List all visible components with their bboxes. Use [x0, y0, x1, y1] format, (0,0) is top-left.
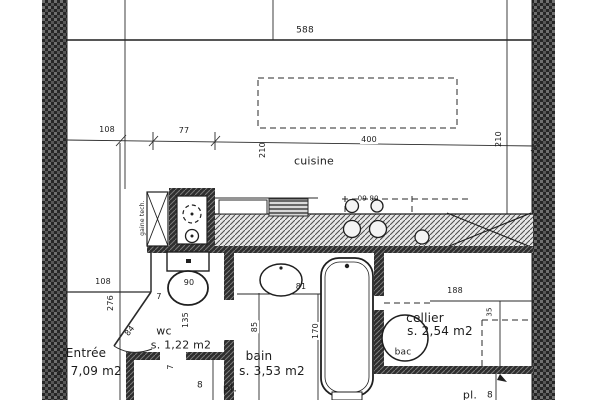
- dim-85: 85: [251, 321, 259, 334]
- roof-opening-dashed-outline: [258, 78, 457, 128]
- dim-210-left: 210: [259, 142, 267, 158]
- room-area-cellier: s. 2,54 m2: [407, 325, 473, 337]
- dim-400: 400: [360, 136, 378, 144]
- dim-108-left: 108: [95, 278, 111, 286]
- room-area-wc: s. 1,22 m2: [151, 340, 211, 351]
- appliance-block: [169, 188, 215, 252]
- dim-588: 588: [296, 27, 314, 36]
- dim-8-pl: 8: [197, 382, 203, 391]
- floor-plan: 588 108 77 400 210 210 cuisine gaine tec…: [0, 0, 600, 400]
- hob-size-label: 08 60: [357, 194, 378, 201]
- dim-81: 81: [296, 283, 307, 291]
- room-label-bain: bain: [246, 350, 273, 362]
- dim-135: 135: [182, 311, 190, 329]
- room-label-placard: pl.: [223, 383, 237, 394]
- bathtub: [321, 258, 373, 400]
- room-label-entree: Entrée: [66, 347, 107, 359]
- outer-wall-right: [532, 0, 555, 400]
- room-area-bain: s. 3,53 m2: [239, 365, 305, 377]
- dim-77: 77: [179, 127, 190, 135]
- room-label-placard-bottom: pl.: [463, 390, 477, 400]
- duct-label: gaine tech.: [140, 200, 146, 236]
- dim-188: 188: [446, 287, 464, 295]
- dim-170: 170: [312, 322, 320, 340]
- room-area-entree: s. 7,09 m2: [56, 365, 122, 377]
- wall-cabinet: [219, 200, 267, 214]
- dim-108-top: 108: [99, 126, 115, 134]
- technical-duct: [147, 192, 168, 246]
- washbasin: [260, 264, 302, 296]
- bac-label: bac: [395, 349, 412, 358]
- dim-8-bottom: 8: [487, 392, 493, 400]
- dim-7-pl: 7: [167, 364, 175, 369]
- outer-wall-left: [42, 0, 67, 400]
- dim-210-right: 210: [495, 131, 503, 147]
- dish-drainer: [269, 199, 308, 216]
- floor-plan-drawing: [0, 0, 600, 400]
- dim-276: 276: [107, 295, 115, 311]
- room-label-cellier: cellier: [406, 312, 444, 324]
- dim-90: 90: [183, 279, 196, 287]
- room-label-wc: wc: [156, 326, 171, 337]
- dim-35: 35: [487, 307, 494, 316]
- door-arrow-mark: [497, 374, 507, 382]
- dim-7-wc: 7: [156, 293, 161, 301]
- room-label-cuisine: cuisine: [294, 156, 334, 167]
